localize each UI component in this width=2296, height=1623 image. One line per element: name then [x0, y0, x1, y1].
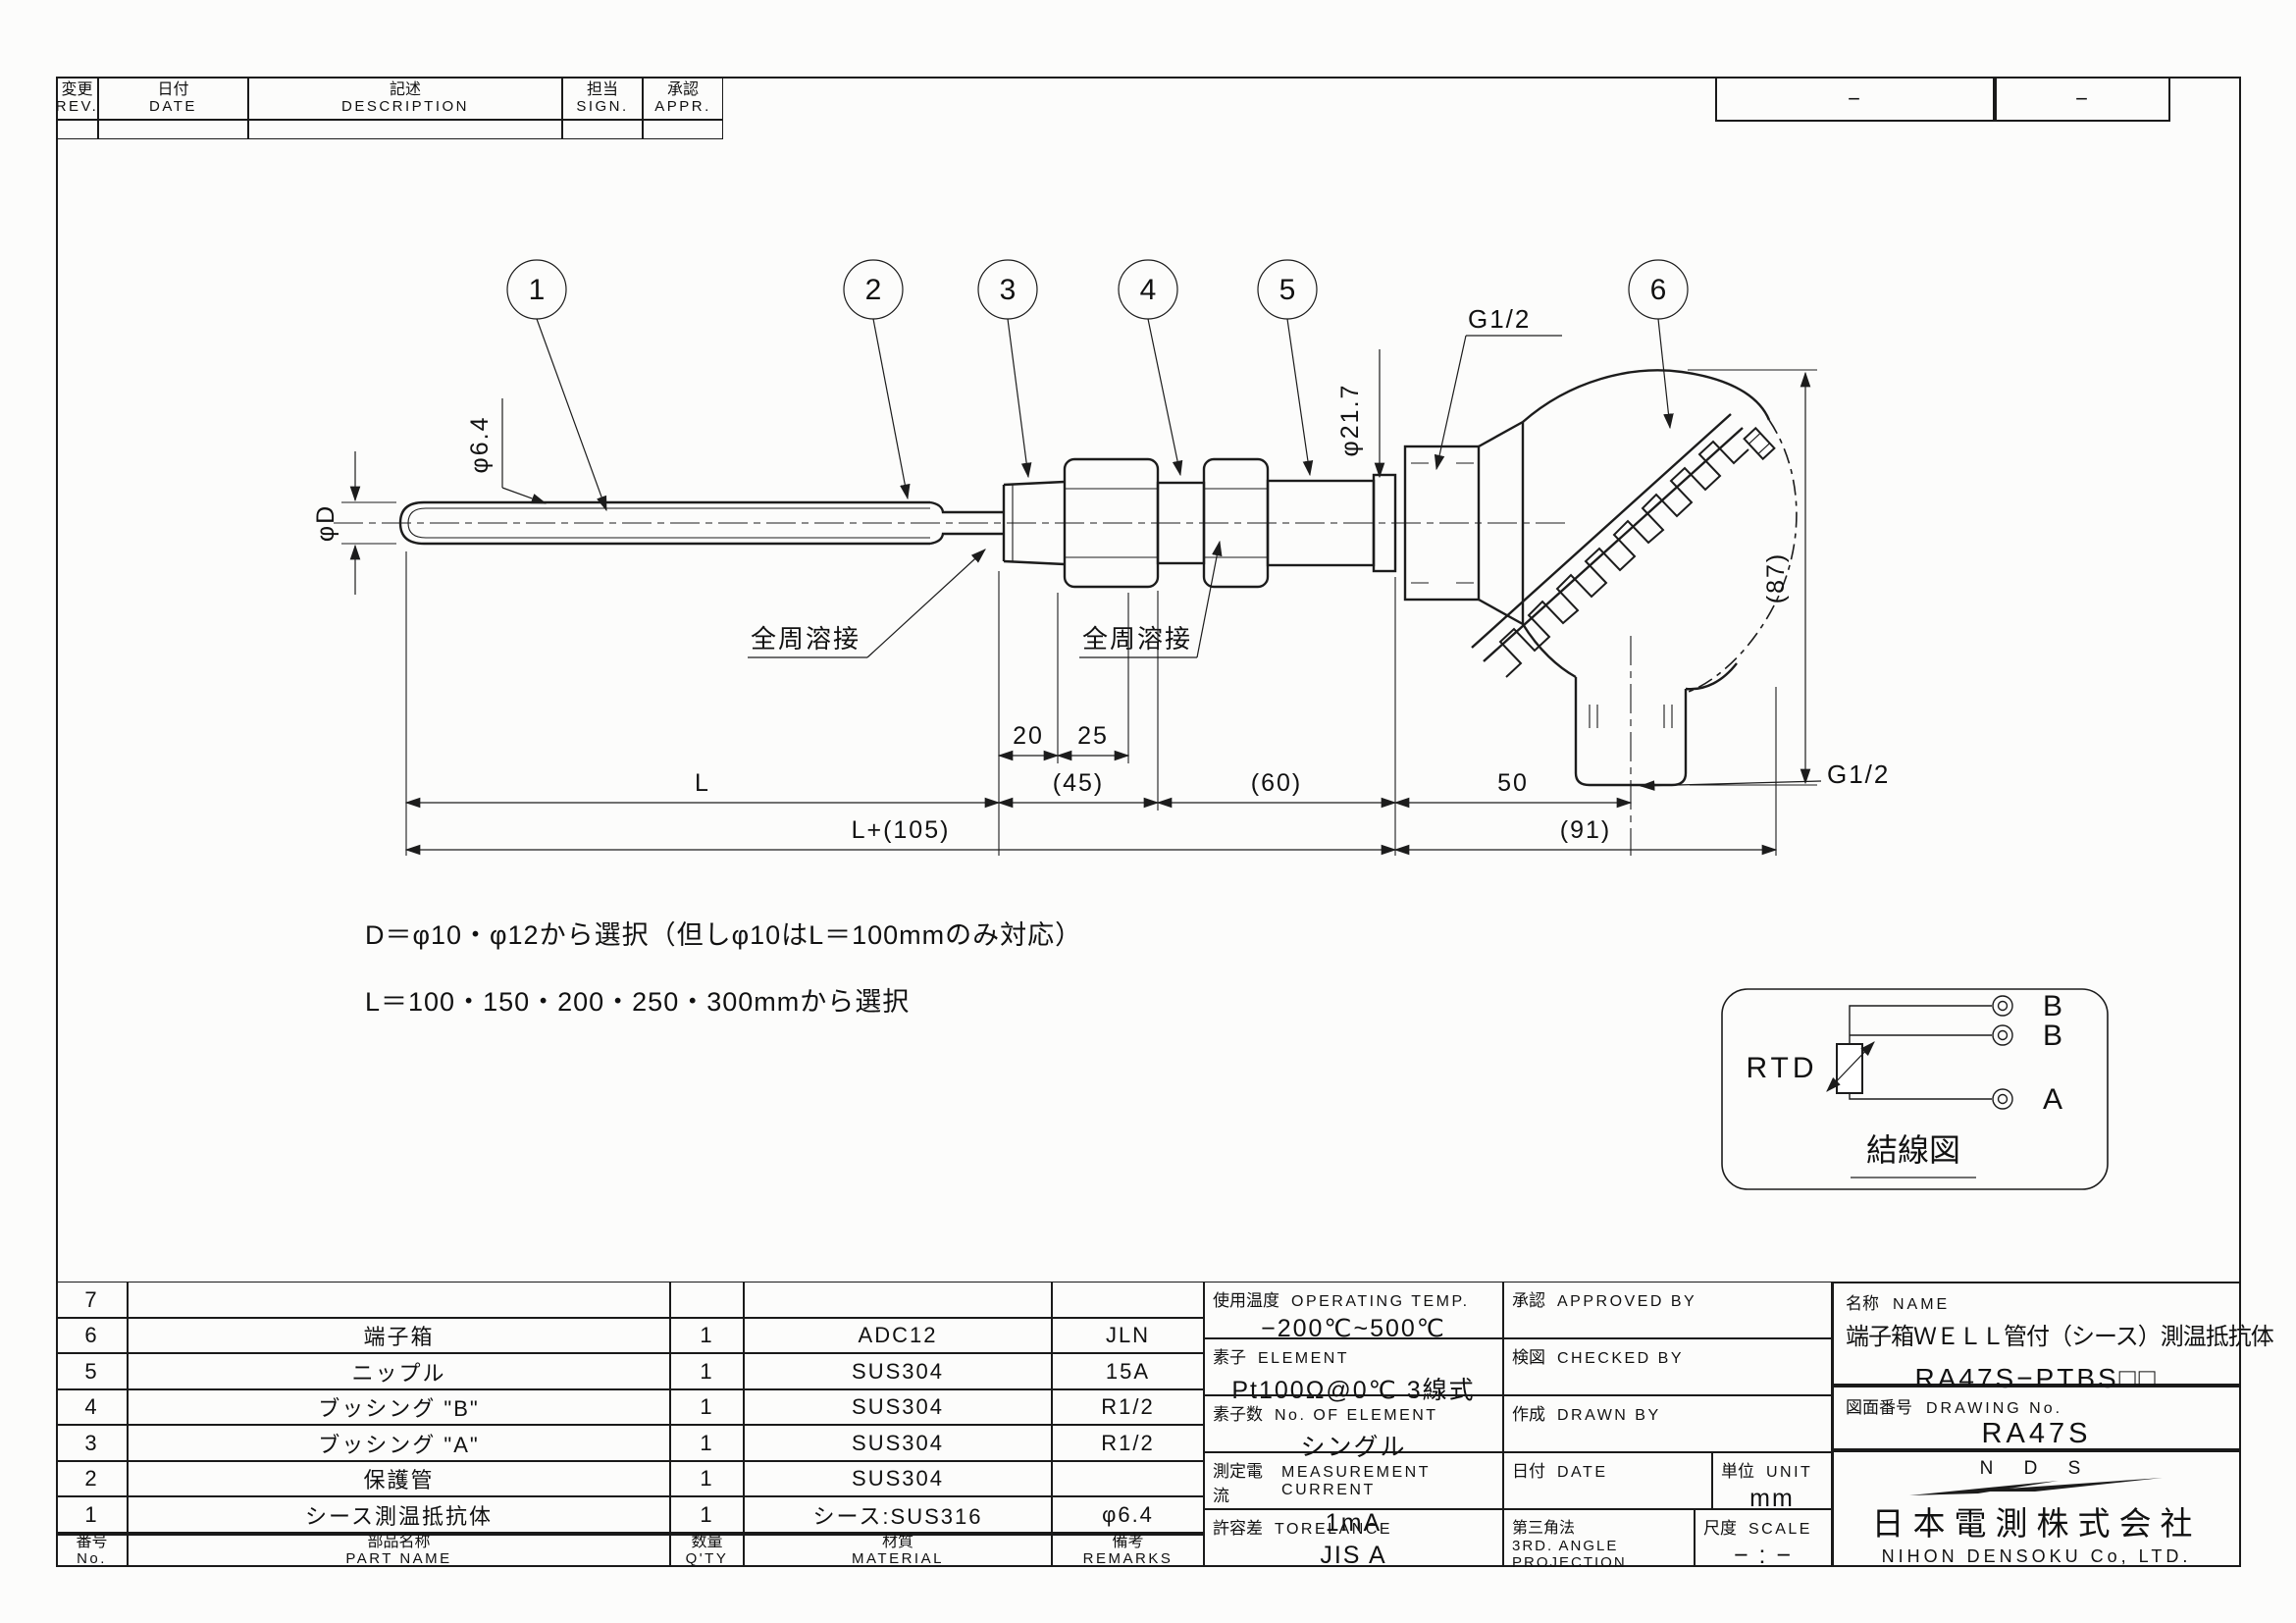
spec-scale: 尺度SCALE − : − — [1695, 1509, 1832, 1567]
spec-tolerance: 許容差TORELANCE JIS A — [1204, 1509, 1503, 1567]
spec-unit: 単位UNIT mm — [1712, 1452, 1832, 1509]
spec-projection: 第三角法 3RD. ANGLE PROJECTION — [1503, 1509, 1695, 1567]
table-row: 1 — [56, 1496, 128, 1533]
table-row: 6 — [56, 1318, 128, 1353]
parts-header-no: 番号No. — [56, 1533, 128, 1567]
title-company-block: N D S 日本電測株式会社 NIHON DENSOKU Co, LTD. — [1832, 1450, 2241, 1567]
rev-row-cell — [643, 120, 723, 139]
nds-logo: N D S — [1846, 1458, 2227, 1497]
rev-row-cell — [98, 120, 248, 139]
drawing-number: RA47S — [1846, 1418, 2227, 1450]
spec-drawn-by: 作成DRAWN BY — [1503, 1395, 1832, 1452]
drawing-sheet: 1 2 3 4 5 6 φD φ6.4 φ21.7 G1/2 G1/2 — [0, 0, 2296, 1623]
spec-date: 日付DATE — [1503, 1452, 1712, 1509]
title-name-block: 名称NAME 端子箱ＷＥＬＬ管付（シース）測温抵抗体 RA47S−PTBS□□ — [1832, 1282, 2241, 1386]
rev-row-cell — [56, 120, 98, 139]
spec-approved-by: 承認APPROVED BY — [1503, 1282, 1832, 1338]
table-row: 7 — [56, 1282, 128, 1318]
table-row: 4 — [56, 1389, 128, 1425]
rev-header-description: 記述 DESCRIPTION — [248, 77, 562, 120]
rev-row-cell — [248, 120, 562, 139]
product-name: 端子箱ＷＥＬＬ管付（シース）測温抵抗体 — [1846, 1317, 2227, 1351]
spec-current: 測定電流MEASUREMENT CURRENT 1mA — [1204, 1452, 1503, 1509]
top-right-cell-2: − — [1995, 77, 2170, 122]
spec-num-element: 素子数No. OF ELEMENT シングル — [1204, 1395, 1503, 1452]
table-row: 5 — [56, 1353, 128, 1389]
title-drawing-no-block: 図面番号DRAWING No. RA47S — [1832, 1386, 2241, 1450]
table-row: 2 — [56, 1461, 128, 1496]
table-row: 3 — [56, 1425, 128, 1461]
parts-header-remarks: 備考REMARKS — [1052, 1533, 1204, 1567]
company-name-en: NIHON DENSOKU Co, LTD. — [1846, 1546, 2227, 1567]
parts-header-name: 部品名称PART NAME — [128, 1533, 670, 1567]
rev-header-appr: 承認 APPR. — [643, 77, 723, 120]
top-right-cell-1: − — [1715, 77, 1995, 122]
parts-header-material: 材質MATERIAL — [744, 1533, 1052, 1567]
parts-header-qty: 数量Q'TY — [670, 1533, 744, 1567]
rev-header-sign: 担当 SIGN. — [562, 77, 643, 120]
spec-checked-by: 検図CHECKED BY — [1503, 1338, 1832, 1395]
rev-row-cell — [562, 120, 643, 139]
spec-element: 素子ELEMENT Pt100Ω@0℃ 3線式 — [1204, 1338, 1503, 1395]
rev-header-rev: 変更 REV. — [56, 77, 98, 120]
spec-operating-temp: 使用温度OPERATING TEMP. −200℃~500℃ — [1204, 1282, 1503, 1338]
company-name-jp: 日本電測株式会社 — [1846, 1497, 2227, 1544]
rev-header-date: 日付 DATE — [98, 77, 248, 120]
